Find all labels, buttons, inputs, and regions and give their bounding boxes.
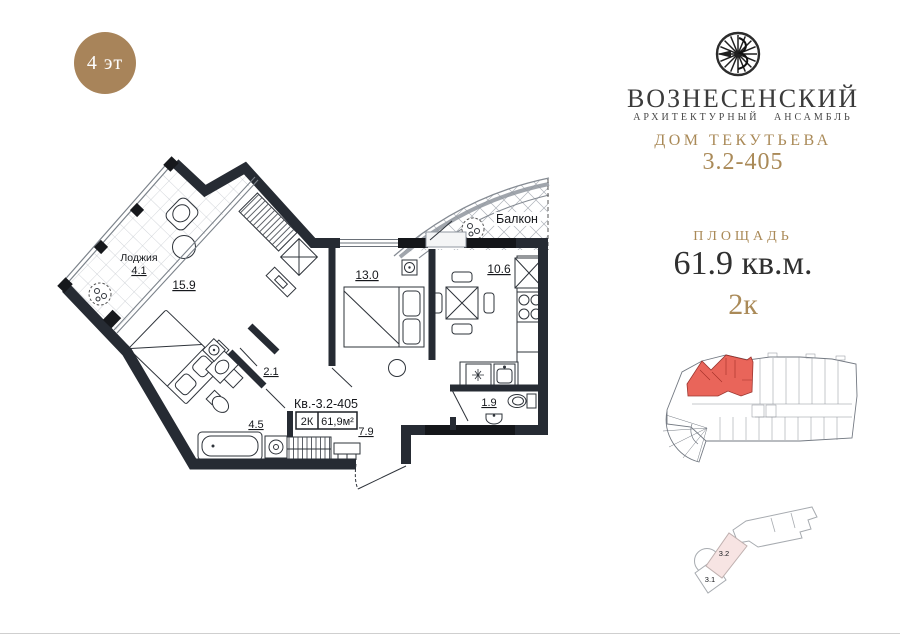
floor-plan: Лоджия 4.1 15.9 13.0 10.6 Балкон 2.1 4.5… xyxy=(40,148,570,500)
bedroom-area: 13.0 xyxy=(355,268,379,282)
wall-clock-icon xyxy=(402,260,417,275)
toilet-icon xyxy=(206,390,232,416)
stool-icon xyxy=(389,360,406,377)
spec-area: 61,9м² xyxy=(321,416,354,428)
closet-icon xyxy=(287,437,331,462)
washing-machine-icon xyxy=(265,436,287,458)
page-bottom-rule xyxy=(0,633,900,634)
highlighted-apartment xyxy=(687,355,753,396)
toilet-icon xyxy=(508,394,536,408)
hall-area: 2.1 xyxy=(263,366,278,378)
brand-unit-number: 3.2-405 xyxy=(600,149,886,176)
round-table-icon xyxy=(173,236,196,259)
brand-emblem xyxy=(712,27,764,81)
brand-tagline: АРХИТЕКТУРНЫЙ АНСАМБЛЬ xyxy=(600,112,886,123)
washbasin-icon xyxy=(486,414,502,424)
hallway-area: 7.9 xyxy=(358,426,373,438)
building-floor-plan xyxy=(645,338,890,470)
wc-area: 1.9 xyxy=(481,397,496,409)
bathtub-icon xyxy=(198,432,262,460)
kitchen-area: 10.6 xyxy=(487,262,511,276)
living-area: 15.9 xyxy=(172,278,196,292)
site-label-other: 3.1 xyxy=(705,575,715,584)
spec-rooms: 2К xyxy=(301,416,314,428)
tv-stand-icon xyxy=(266,267,296,297)
site-label-highlight: 3.2 xyxy=(719,549,729,558)
dining-table-icon xyxy=(432,272,494,334)
brand-name: ВОЗНЕСЕНСКИЙ xyxy=(600,84,886,114)
site-plan: 3.2 3.1 xyxy=(670,495,830,610)
plant-icon xyxy=(89,283,111,305)
floor-badge-label: 4 эт xyxy=(87,52,123,75)
balcony-label: Балкон xyxy=(496,212,538,226)
hallway-furniture xyxy=(287,437,360,462)
bathroom-fixtures xyxy=(198,339,287,460)
loggia-label: Лоджия xyxy=(120,252,157,264)
area-label: ПЛОЩАДЬ xyxy=(600,229,886,245)
area-rooms-count: 2к xyxy=(600,288,886,322)
floor-badge: 4 эт xyxy=(74,32,136,94)
spec-box: 2К 61,9м² xyxy=(296,412,357,429)
brand-house: ДОМ ТЕКУТЬЕВА xyxy=(600,132,886,150)
bath-area: 4.5 xyxy=(248,419,263,431)
loggia-area: 4.1 xyxy=(131,265,146,277)
kitchen-lower-counter xyxy=(460,362,518,388)
site-building-bar xyxy=(733,507,817,547)
compass-rose-icon xyxy=(717,33,759,75)
bench-icon xyxy=(334,443,360,460)
area-value: 61.9 кв.м. xyxy=(600,245,886,283)
apartment-label: Кв.-3.2-405 xyxy=(294,397,358,411)
balcony-door-sill xyxy=(426,232,466,247)
